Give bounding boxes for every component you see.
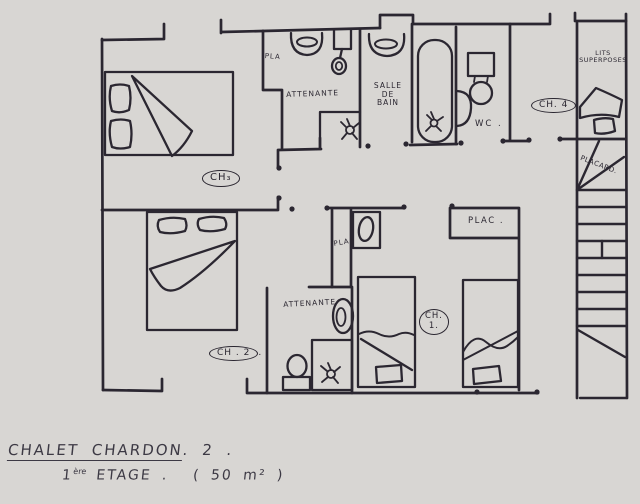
floor-plan-drawing [0, 0, 640, 504]
plan-title: CHALET CHARDON. 2 . [7, 441, 234, 459]
room-label-ch2: CH . 2. [209, 346, 262, 361]
hand-shower-icon [332, 30, 351, 74]
toilet-icon [283, 355, 310, 390]
closet-label-pla-top: PLA [264, 52, 281, 61]
bathroom-label: SALLE DE BAIN [369, 82, 407, 108]
floor-word: ETAGE . [95, 468, 169, 484]
wall-basin-icon [457, 91, 471, 126]
bathtub-icon [418, 40, 452, 142]
single-bed-icon [463, 280, 518, 387]
shower-stall-icon [320, 112, 360, 149]
floor-area: ( 50 m² ) [192, 468, 285, 484]
room-label-ch4: CH. 4 [531, 98, 576, 113]
staircase [577, 141, 626, 398]
wc-label: WC . [475, 120, 503, 130]
toilet-icon [468, 53, 494, 104]
corner-washbasin-icon [353, 212, 380, 248]
room-label-ch3: CH₃ [202, 170, 240, 187]
double-bed-ch3-icon [105, 72, 233, 156]
bunk-bed-icon [580, 88, 622, 134]
scanned-floor-plan: PLA ATTENANTE SALLE DE BAIN WC . CH. 4 L… [0, 0, 640, 504]
closet-label-plac: PLAC . [468, 217, 504, 227]
plan-title-underlined: CHALET CHARDON [7, 441, 184, 461]
floor-ordinal: ère [73, 467, 87, 476]
single-bed-icon [358, 277, 415, 387]
ensuite-label-top: ATTENANTE [286, 89, 339, 99]
floor-subtitle: 1ère ETAGE . ( 50 m² ) [61, 467, 285, 484]
plan-title-number: . 2 . [182, 441, 235, 459]
shower-stall-icon [312, 340, 352, 390]
bunk-beds-label: LITS SUPERPOSES [578, 50, 628, 65]
washbasin-icon [291, 33, 322, 55]
room-label-ch1: CH.1. [419, 309, 449, 335]
washbasin-icon [369, 34, 404, 56]
double-bed-ch2-icon [147, 212, 237, 330]
